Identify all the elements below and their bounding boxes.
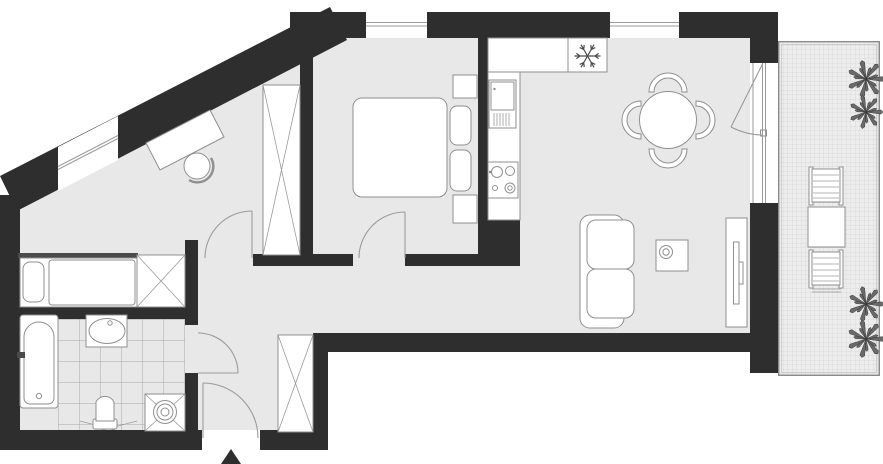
single-bed xyxy=(18,253,138,307)
wall-office-east xyxy=(300,42,313,266)
tv-bench xyxy=(726,218,747,327)
terrace xyxy=(778,41,883,376)
dining-table xyxy=(640,92,697,149)
pillow xyxy=(450,106,471,145)
kitchen-counter-top xyxy=(488,38,568,72)
wall-right-upper xyxy=(750,36,778,63)
wall-living-bottom xyxy=(313,333,778,352)
nightstand xyxy=(453,75,477,98)
nightstand xyxy=(453,195,477,223)
washbasin xyxy=(86,315,127,347)
tv xyxy=(734,242,740,304)
floor-plan-canvas xyxy=(0,0,883,464)
sofa-cushion xyxy=(587,220,634,269)
entrance-arrow-icon xyxy=(221,449,241,464)
wall-top xyxy=(290,12,778,38)
wall-kitchen-stub xyxy=(478,220,520,266)
deck-chair xyxy=(809,167,843,205)
outdoor-table xyxy=(808,207,845,247)
wall-bedroom-kitchen xyxy=(478,38,488,220)
window xyxy=(366,12,427,38)
wall-entry-right xyxy=(260,430,328,450)
wall-bath-east-upper xyxy=(185,240,198,325)
wall-bath-east-lower xyxy=(185,373,198,430)
wall-left xyxy=(0,195,20,450)
window xyxy=(610,12,679,38)
double-bed xyxy=(353,98,447,197)
wardrobe xyxy=(137,255,185,307)
washing-machine xyxy=(145,394,185,431)
wall-bottom-left xyxy=(0,430,202,450)
coffee-table xyxy=(656,240,688,271)
bathtub xyxy=(17,315,58,408)
toilet xyxy=(93,396,117,429)
tall-wardrobe xyxy=(263,85,300,255)
wardrobe xyxy=(278,335,313,432)
pillow xyxy=(450,150,471,191)
sofa-cushion xyxy=(587,269,634,318)
